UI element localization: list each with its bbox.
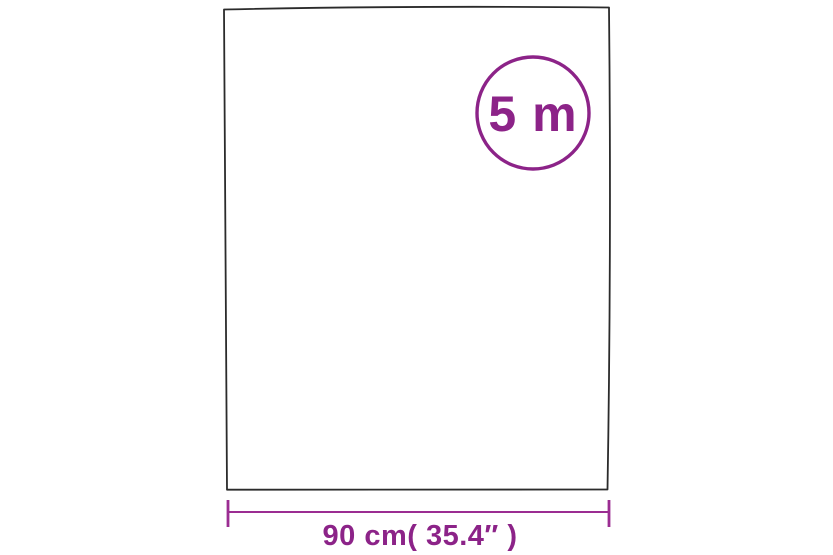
- dimension-label: 90 cm( 35.4″ ): [323, 520, 518, 552]
- length-badge-label: 5 m: [488, 86, 577, 142]
- figure-canvas: 5 m 90 cm( 35.4″ ): [0, 0, 833, 555]
- product-dimension-figure: 5 m 90 cm( 35.4″ ): [0, 0, 833, 555]
